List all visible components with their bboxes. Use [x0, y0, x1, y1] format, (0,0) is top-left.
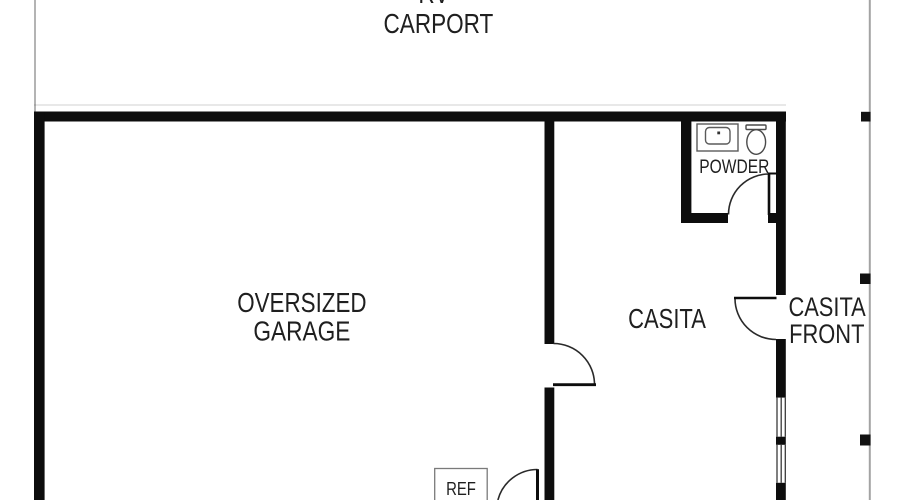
svg-text:CASITA: CASITA [788, 293, 866, 323]
svg-text:REF: REF [446, 479, 476, 500]
svg-text:CASITA: CASITA [628, 304, 706, 335]
svg-text:FRONT: FRONT [789, 320, 864, 350]
svg-text:CARPORT: CARPORT [383, 9, 493, 40]
svg-text:GARAGE: GARAGE [253, 316, 350, 347]
svg-text:OVERSIZED: OVERSIZED [237, 288, 366, 319]
svg-text:POWDER: POWDER [699, 156, 769, 178]
